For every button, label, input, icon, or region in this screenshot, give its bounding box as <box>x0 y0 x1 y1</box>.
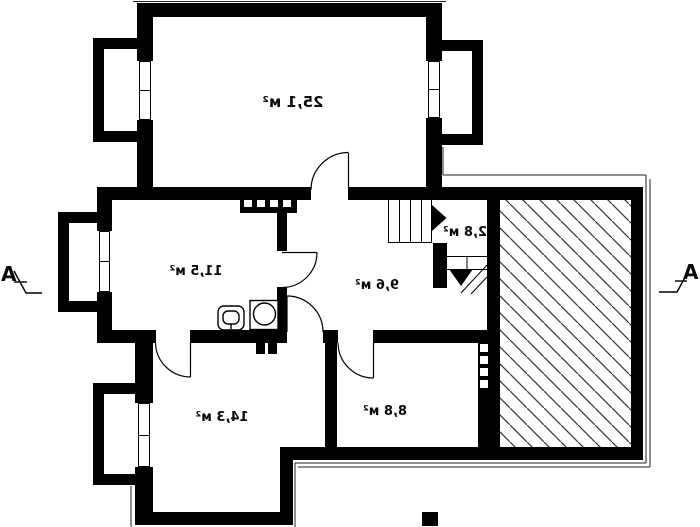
window-living-left <box>140 62 151 120</box>
room-label-living: 25,1 м² <box>262 93 323 111</box>
room-label-hall: 9,6 м² <box>355 278 399 293</box>
garage-hatch-area <box>500 200 631 447</box>
room-label-small-room: 8,8 м² <box>363 404 407 419</box>
sink-icon <box>250 301 278 330</box>
window-bedroom <box>139 404 150 467</box>
chimney-marker <box>422 512 438 526</box>
floor-plan-canvas: A A 25,1 м² 11,5 м² 9,6 м² 2,8 м² 14,3 м… <box>0 0 700 527</box>
floor-plan-svg: A A 25,1 м² 11,5 м² 9,6 м² 2,8 м² 14,3 м… <box>0 0 700 527</box>
window-kitchen <box>100 232 110 292</box>
room-label-kitchen: 11,5 м² <box>170 264 223 279</box>
stove-icon <box>218 306 244 330</box>
room-label-stairs: 2,8 м² <box>443 225 487 240</box>
window-living-right <box>429 62 440 118</box>
vent-comb-top <box>240 200 297 213</box>
room-label-bedroom: 14,3 м² <box>196 410 249 425</box>
